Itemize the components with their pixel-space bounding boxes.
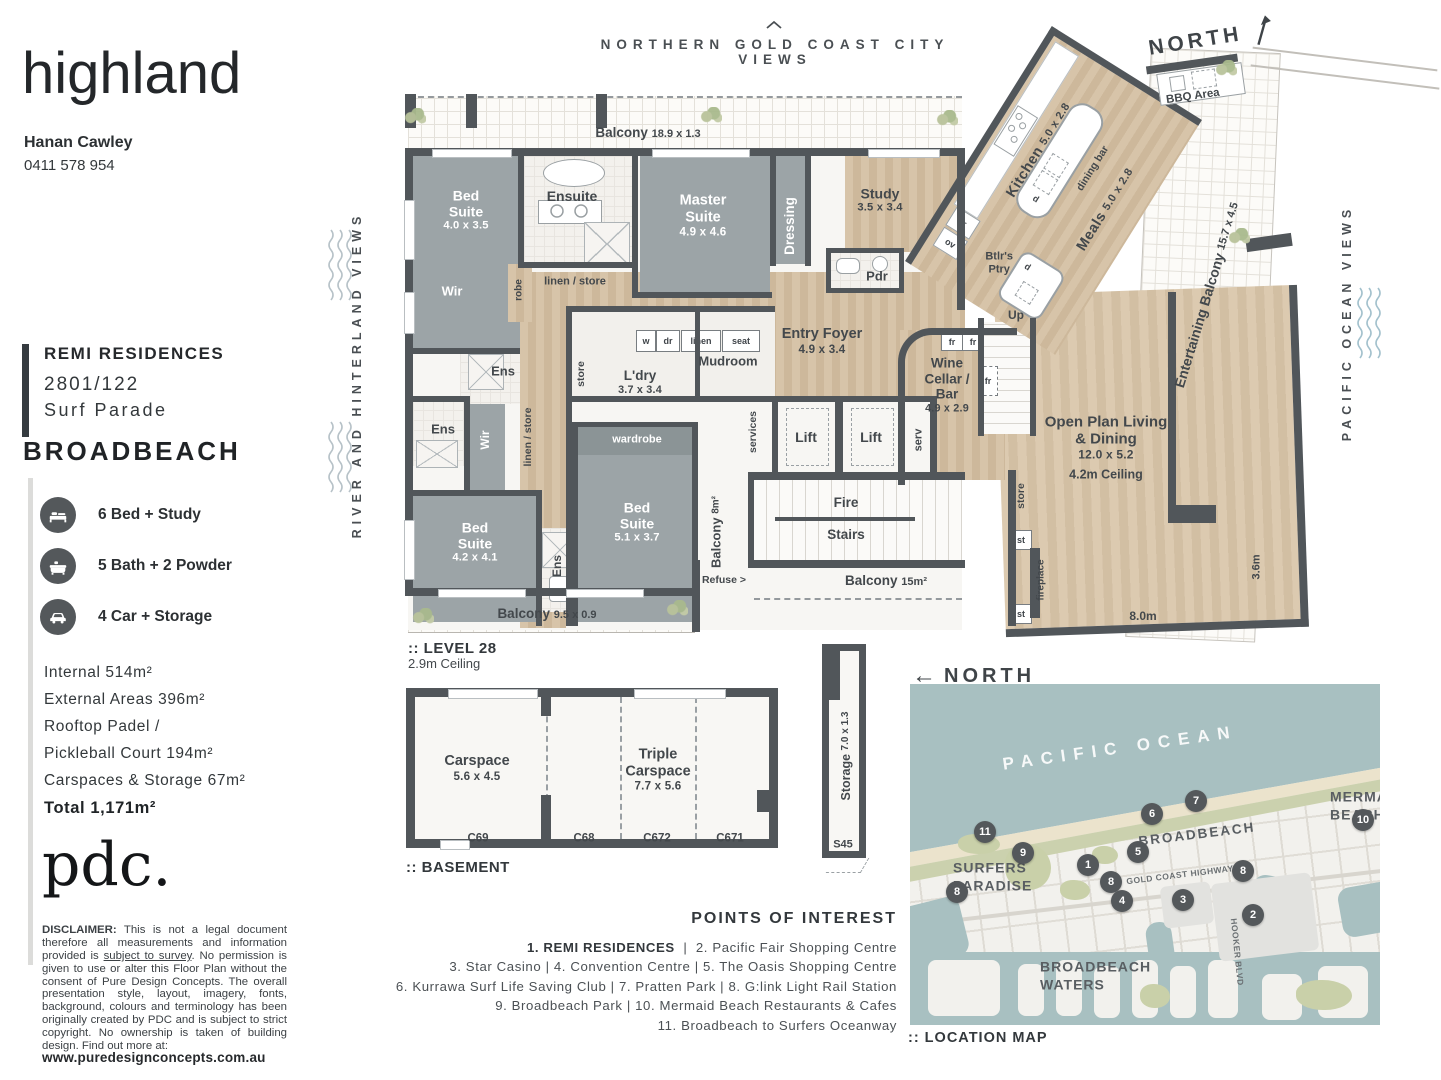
balcony-15-label: Balcony 15m² (845, 573, 927, 589)
level-28-label: :: LEVEL 28 (408, 640, 497, 657)
poi-line: 1. REMI RESIDENCES | 2. Pacific Fair Sho… (340, 938, 897, 957)
bbq-sink (1169, 75, 1186, 92)
map-marker-6: 6 (1141, 803, 1163, 825)
laundry-label: L'dry3.7 x 3.4 (618, 368, 662, 396)
plant-icon (1215, 60, 1237, 76)
basement-label: :: BASEMENT (406, 859, 510, 876)
area-external: External Areas 396m² (44, 691, 205, 709)
bed-suite-3-label: Bed Suite4.2 x 4.1 (443, 519, 507, 564)
mudroom-label: Mudroom (698, 355, 757, 370)
map-marker-9: 9 (1012, 842, 1034, 864)
agent-name: Hanan Cawley (24, 134, 132, 152)
feature-baths-label: 5 Bath + 2 Powder (98, 557, 232, 575)
feature-cars-label: 4 Car + Storage (98, 608, 212, 626)
map-marker-5: 5 (1127, 841, 1149, 863)
balcony-8-label: Balcony 8m² (710, 496, 725, 568)
bed-suite-1-label: Bed Suite4.0 x 3.5 (434, 187, 498, 232)
poi-line: 9. Broadbeach Park | 10. Mermaid Beach R… (340, 996, 897, 1015)
lift-1-label: Lift (795, 429, 817, 445)
entry-foyer-label: Entry Foyer4.9 x 3.4 (782, 326, 863, 356)
area-pickleball: Pickleball Court 194m² (44, 745, 213, 763)
feature-beds-label: 6 Bed + Study (98, 506, 201, 524)
plant-icon (700, 107, 722, 123)
map-marker-3: 3 (1172, 889, 1194, 911)
poi-line: 11. Broadbeach to Surfers Oceanway (340, 1016, 897, 1035)
plant-icon (666, 600, 688, 616)
plant-icon (412, 608, 434, 624)
ensuite-label: Ensuite (547, 188, 598, 204)
map-north-label: NORTH (944, 665, 1035, 688)
linen-store-v-label: linen / store (522, 408, 534, 467)
dishwasher-label: d (1031, 193, 1041, 205)
area-internal: Internal 514m² (44, 664, 152, 682)
stair-rail (775, 517, 915, 521)
feature-beds: 6 Bed + Study (40, 497, 201, 533)
bay-c672: C672 (643, 832, 671, 845)
pdc-logo: pdc. (42, 830, 172, 900)
top-view-caption: NORTHERN GOLD COAST CITY VIEWS (560, 37, 990, 67)
plant-icon (404, 108, 426, 124)
ens-c-label: Ens (551, 555, 565, 577)
poi-line: 6. Kurrawa Surf Life Saving Club | 7. Pr… (340, 977, 897, 996)
lift-2-label: Lift (860, 429, 882, 445)
map-north-indicator: ← NORTH (912, 662, 1035, 690)
map-marker-1: 1 (1077, 854, 1099, 876)
wir-label: Wir (442, 285, 463, 300)
ens-label: Ens (491, 365, 515, 380)
refuse-label: Refuse > (702, 574, 746, 586)
bed-suite-1-room (413, 156, 520, 352)
map-marker-4: 4 (1111, 890, 1133, 912)
points-of-interest: POINTS OF INTEREST 1. REMI RESIDENCES | … (340, 910, 897, 1035)
balcony-bottom-label: Balcony 9.5 x 0.9 (497, 606, 596, 622)
washer-box: w (636, 330, 656, 352)
dryer-box: dr (656, 330, 680, 352)
storage-label: Storage 7.0 x 1.3 (839, 712, 853, 801)
bed-icon (40, 497, 76, 533)
area-carspaces: Carspaces & Storage 67m² (44, 772, 245, 790)
ceiling-label: 2.9m Ceiling (408, 656, 480, 671)
dim-8m-label: 8.0m (1129, 610, 1156, 624)
sidebar-rule (28, 478, 33, 965)
stairs-label: Stairs (827, 527, 865, 543)
linen-box: linen (681, 330, 721, 352)
bath-icon (40, 548, 76, 584)
wir-2-label: Wir (479, 430, 493, 449)
car-icon (40, 599, 76, 635)
storage-door-swing (826, 858, 870, 873)
map-marker-11: 11 (974, 821, 996, 843)
map-marker-8: 8 (946, 881, 968, 903)
bay-c68: C68 (573, 832, 594, 845)
ens-label: Ens (431, 423, 455, 438)
open-plan-label: Open Plan Living & Dining12.0 x 5.24.2m … (1042, 414, 1170, 483)
shower (584, 222, 630, 266)
highland-logo: highland (22, 40, 241, 107)
dim-36-label: 3.6m (1251, 554, 1264, 579)
fireplace-label: fireplace (1035, 559, 1047, 600)
seat-box: seat (722, 330, 760, 352)
pdc-website[interactable]: www.puredesignconcepts.com.au (42, 1050, 266, 1065)
store-2-label: store (1015, 483, 1027, 509)
bay-c671: C671 (716, 832, 744, 845)
store-label: store (575, 361, 587, 387)
location-map: PACIFIC OCEAN MERMAIDBEACH BROADBEACH SU… (910, 684, 1380, 1025)
map-marker-8: 8 (1232, 860, 1254, 882)
building-name: REMI RESIDENCES (44, 344, 224, 364)
agent-phone: 0411 578 954 (24, 157, 115, 174)
floorplan-page: highland Hanan Cawley 0411 578 954 REMI … (0, 0, 1441, 1080)
toilet (836, 258, 860, 274)
butlers-pantry-label: Btlr's Ptry (973, 251, 1025, 276)
fire-label: Fire (834, 495, 859, 511)
street-name: Surf Parade (44, 400, 168, 421)
chevron-up-icon (765, 20, 783, 29)
bed-suite-2-label: Bed Suite5.1 x 3.7 (605, 499, 669, 544)
dressing-label: Dressing (782, 197, 798, 255)
bay-c69: C69 (467, 832, 488, 845)
fire-stairs (754, 480, 962, 562)
wine-cellar-label: Wine Cellar / Bar4.9 x 2.9 (914, 356, 980, 415)
plant-icon (936, 110, 958, 126)
robe-label: robe (513, 279, 525, 301)
carspace-label: Carspace5.6 x 4.5 (444, 753, 509, 783)
unit-number: 2801/122 (44, 374, 139, 396)
accent-bar (22, 344, 29, 437)
up-label: Up (1008, 309, 1024, 323)
feature-baths: 5 Bath + 2 Powder (40, 548, 232, 584)
bathtub (543, 159, 605, 187)
wardrobe-label: wardrobe (612, 434, 662, 447)
study-label: Study3.5 x 3.4 (857, 186, 902, 215)
feature-cars: 4 Car + Storage (40, 599, 212, 635)
left-arrow-icon: ← (912, 662, 936, 690)
map-marker-10: 10 (1352, 809, 1374, 831)
right-view-caption: PACIFIC OCEAN VIEWS (1340, 205, 1354, 441)
north-arrow-icon (1246, 14, 1276, 48)
shower (416, 440, 458, 468)
linen-store-label: linen / store (544, 276, 606, 289)
map-marker-7: 7 (1185, 790, 1207, 812)
storage-id-label: S45 (833, 839, 853, 852)
disclaimer-body2: . No permission is given to use or alter… (42, 950, 287, 1052)
disclaimer: DISCLAIMER: This is not a legal document… (42, 924, 287, 1066)
disclaimer-label: DISCLAIMER: (42, 924, 117, 936)
triple-carspace-label: Triple Carspace7.7 x 5.6 (612, 747, 704, 794)
area-rooftop: Rooftop Padel / (44, 718, 160, 736)
waves-icon (1356, 286, 1382, 366)
map-marker-2: 2 (1242, 904, 1264, 926)
balcony-top-label: Balcony 18.9 x 1.3 (595, 125, 700, 141)
area-total: Total 1,171m² (44, 799, 156, 818)
powder-label: Pdr (866, 270, 888, 285)
disclaimer-underlined: subject to survey (104, 950, 192, 962)
suburb-name: BROADBEACH (23, 436, 241, 467)
poi-line: 3. Star Casino | 4. Convention Centre | … (340, 957, 897, 976)
services-label: services (747, 411, 759, 453)
serv-label: serv (913, 429, 926, 452)
location-map-caption: :: LOCATION MAP (908, 1030, 1048, 1046)
master-suite-label: Master Suite4.9 x 4.6 (663, 193, 743, 240)
left-view-caption: RIVER AND HINTERLAND VIEWS (350, 212, 364, 539)
poi-title: POINTS OF INTEREST (340, 910, 897, 928)
